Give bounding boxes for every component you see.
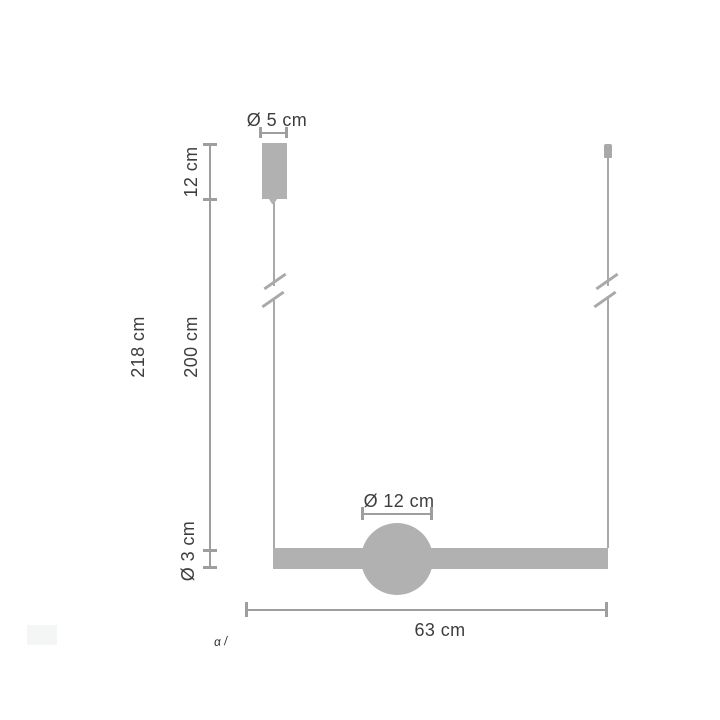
watermark-fragment: α / xyxy=(213,631,254,651)
cable-length-label: 200 cm xyxy=(181,302,201,392)
bar-width-line xyxy=(247,609,608,611)
bar-diameter-label: Ø 3 cm xyxy=(178,506,198,596)
sphere-diameter-label: Ø 12 cm xyxy=(354,491,444,511)
bar-width-label: 63 cm xyxy=(395,620,485,640)
faint-gray-box xyxy=(27,625,57,645)
sphere-diameter-line xyxy=(363,513,433,515)
tick-canopy-bottom xyxy=(203,198,217,201)
break-mark-icon xyxy=(263,273,286,290)
break-mark-icon xyxy=(593,291,616,308)
vertical-dimension-line xyxy=(209,144,211,569)
lamp-bar xyxy=(273,548,608,569)
right-cable-lower xyxy=(607,298,609,548)
tick-bar-top xyxy=(203,549,217,552)
right-cable-plug xyxy=(604,144,612,158)
tick-left xyxy=(245,602,248,617)
canopy-diameter-line xyxy=(261,132,287,134)
tick-right xyxy=(605,602,608,617)
dimension-diagram: Ø 5 cm 12 cm 218 cm 200 cm Ø 3 cm Ø 12 c… xyxy=(0,0,720,720)
ceiling-canopy xyxy=(262,143,287,199)
canopy-height-label: 12 cm xyxy=(181,127,201,217)
total-height-label: 218 cm xyxy=(128,302,148,392)
tick-top xyxy=(203,143,217,146)
lamp-sphere xyxy=(361,523,433,595)
canopy-diameter-label: Ø 5 cm xyxy=(232,110,322,130)
left-cable-upper xyxy=(273,203,275,286)
left-cable-lower xyxy=(273,298,275,548)
right-cable-upper xyxy=(607,158,609,286)
tick-bar-bottom xyxy=(203,566,217,569)
